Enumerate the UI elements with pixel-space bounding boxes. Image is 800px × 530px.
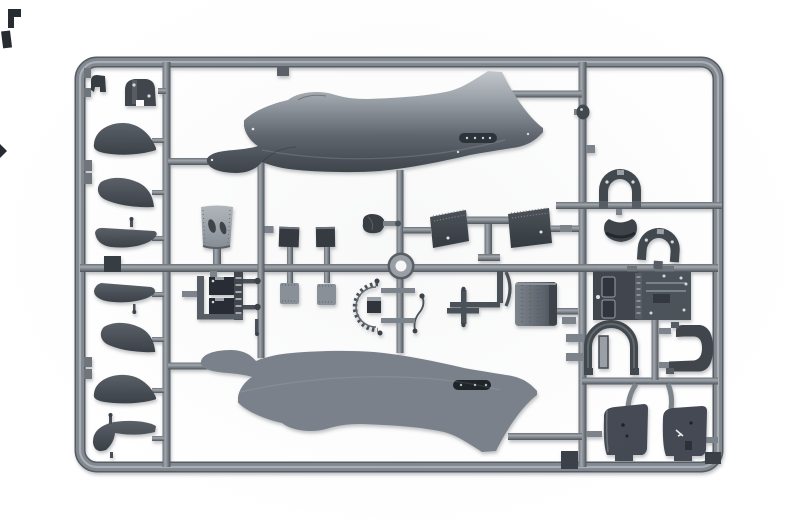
float-half-3 xyxy=(93,413,156,458)
stray-part-1 xyxy=(8,9,21,28)
radiator-slab-2 xyxy=(508,208,552,248)
exhaust-quadrant xyxy=(355,279,425,336)
tail-cap xyxy=(125,79,156,106)
radiator-slab-1 xyxy=(430,210,469,248)
blade-3 xyxy=(101,323,155,352)
firewall-panel-2 xyxy=(316,227,335,247)
cockpit-deck xyxy=(593,272,691,321)
right-cell-runner-2 xyxy=(582,378,718,385)
float-half-2 xyxy=(94,283,155,314)
fuselage-half-lower xyxy=(201,350,537,452)
cowl-panel-2 xyxy=(663,406,707,461)
blade-1 xyxy=(94,123,156,155)
center-ring xyxy=(388,253,415,280)
sprue-pad-1 xyxy=(561,451,578,469)
blade-2 xyxy=(98,178,154,207)
cowling-cone xyxy=(201,206,233,249)
radiator-panel-2 xyxy=(317,284,336,305)
float-half-1 xyxy=(95,217,157,248)
junction-block xyxy=(104,256,121,272)
sprue-canvas xyxy=(0,0,800,530)
radiator-panel-1 xyxy=(280,283,299,304)
sprue-photo xyxy=(0,0,800,530)
t-runner xyxy=(467,217,513,262)
bulkhead-arch xyxy=(584,324,639,375)
spinner-scoop xyxy=(363,214,401,233)
nose-cap xyxy=(91,75,106,92)
headrest-saddle xyxy=(604,219,637,242)
cowl-panel-1 xyxy=(604,404,648,461)
stray-part-3 xyxy=(0,144,7,158)
fuselage-half-upper xyxy=(207,71,543,173)
center-runner-1 xyxy=(258,158,265,358)
fin-runner-top xyxy=(506,91,582,98)
mount-bracket xyxy=(666,322,713,374)
sprue-pad-2 xyxy=(705,452,721,464)
firewall-panel-1 xyxy=(279,227,300,248)
engine-block xyxy=(182,272,261,336)
blade-4 xyxy=(94,375,156,404)
engine-bearer-arch-2 xyxy=(636,227,681,271)
oil-tank-drum xyxy=(515,282,557,326)
fin-runner-bottom xyxy=(508,433,582,440)
control-stick xyxy=(447,271,510,327)
stray-part-2 xyxy=(1,30,12,48)
